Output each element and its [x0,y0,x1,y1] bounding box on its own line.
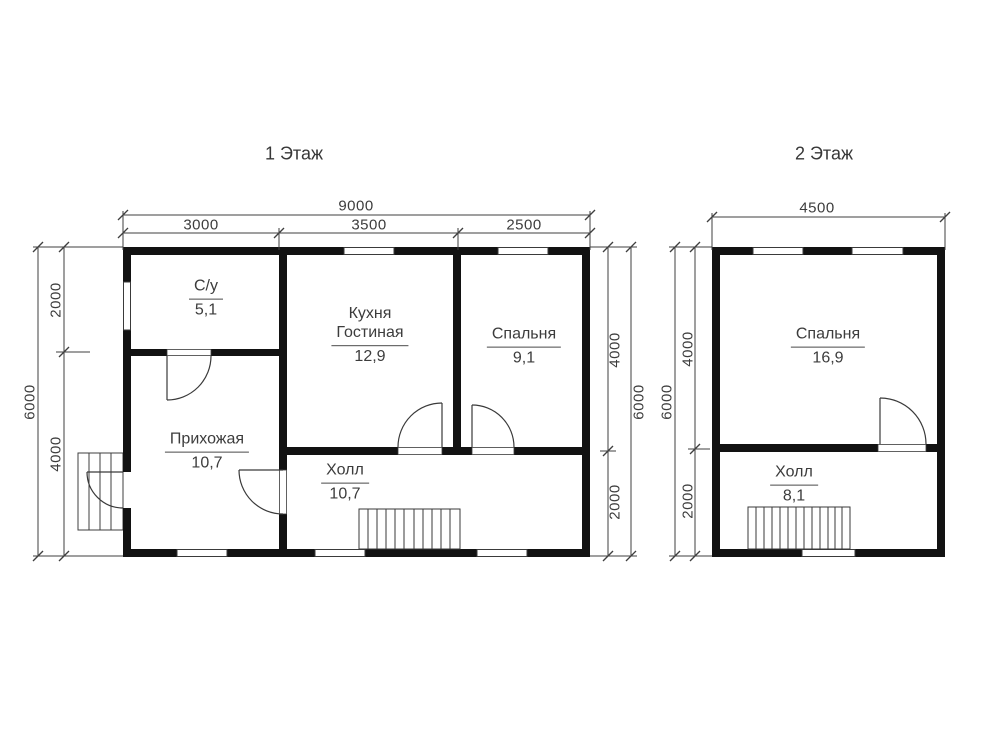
dim-f2-width-total: 4500 [799,200,834,217]
room-label-kitchen: Кухня Гостиная 12,9 [331,305,408,367]
door-entry-hall [239,470,283,514]
floor2-door-openings [878,445,926,452]
room-area: 10,7 [321,484,369,505]
dim-f2-height-total: 6000 [659,384,676,419]
dim-f1-w1: 3000 [183,217,218,234]
room-area: 12,9 [331,346,408,367]
room-name: Холл [770,464,818,486]
room-area: 8,1 [770,486,818,507]
floor1-plan [33,210,637,561]
floor-plan-document: 1 Этаж 2 Этаж 9000 3000 3500 2500 6000 2… [0,0,1000,750]
dim-f1-w2: 3500 [351,217,386,234]
room-area: 16,9 [791,348,865,369]
room-area: 9,1 [487,348,561,369]
dim-f1-height-total-left: 6000 [22,384,39,419]
dim-f1-w3: 2500 [506,217,541,234]
dim-f2-left-top: 4000 [680,331,697,366]
door-su [167,356,211,400]
dim-f1-left-bottom: 4000 [48,436,65,471]
floor1-windows [124,248,549,557]
door-bedroom-f2 [880,398,926,444]
door-bedroom-f1 [472,405,514,447]
room-name: С/у [189,278,223,300]
room-area: 5,1 [189,300,223,321]
dim-f2-left-bottom: 2000 [680,483,697,518]
room-label-hall-f2: Холл 8,1 [770,464,818,507]
room-name-line2: Гостиная [336,324,403,341]
room-label-su: С/у 5,1 [189,278,223,321]
room-name-line1: Кухня [349,305,392,322]
room-label-entry: Прихожая 10,7 [165,431,249,474]
room-name: Прихожая [165,431,249,453]
floor1-title: 1 Этаж [265,144,323,165]
floor1-staircase [359,509,460,549]
room-name: Спальня [791,326,865,348]
room-label-bedroom-f2: Спальня 16,9 [791,326,865,369]
floor1-doors [87,356,514,514]
dim-f1-left-top: 2000 [48,282,65,317]
floor2-doors [880,398,926,444]
room-name: Спальня [487,326,561,348]
dim-f1-right-top: 4000 [607,332,624,367]
floor1-porch [78,453,123,530]
floor2-plan [669,212,950,561]
floor-plan-drawing [0,0,1000,750]
room-name: Холл [321,462,369,484]
dim-f1-right-bottom: 2000 [607,484,624,519]
dim-f1-height-total-right: 6000 [631,384,648,419]
room-name: Кухня Гостиная [331,305,408,346]
floor2-title: 2 Этаж [795,144,853,165]
room-label-hall-f1: Холл 10,7 [321,462,369,505]
room-area: 10,7 [165,453,249,474]
room-label-bedroom-f1: Спальня 9,1 [487,326,561,369]
dim-f1-width-total: 9000 [338,198,373,215]
door-kitchen [398,403,442,447]
floor2-staircase [748,507,850,549]
